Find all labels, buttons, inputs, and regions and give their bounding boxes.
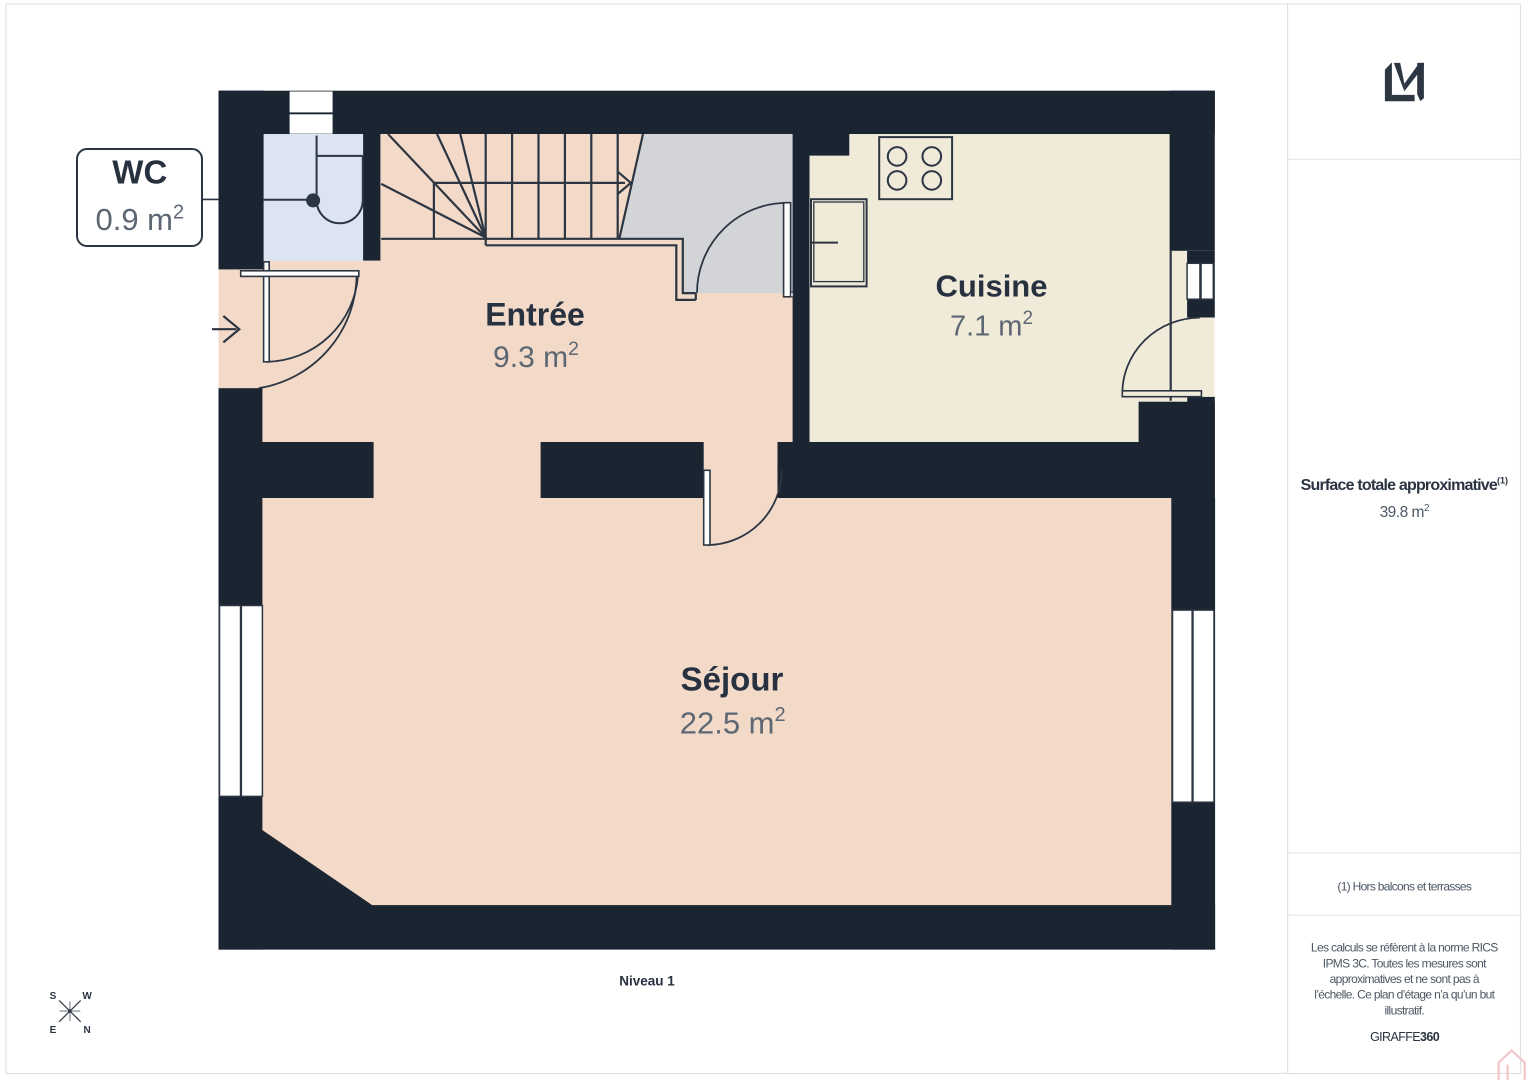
svg-text:Cuisine: Cuisine xyxy=(936,269,1048,304)
svg-text:Niveau 1: Niveau 1 xyxy=(619,973,675,988)
svg-text:E: E xyxy=(50,1025,57,1036)
svg-text:9.3 m2: 9.3 m2 xyxy=(493,338,579,374)
svg-text:W: W xyxy=(82,991,92,1002)
svg-text:WC: WC xyxy=(112,153,167,190)
svg-text:approximatives et ne sont pas: approximatives et ne sont pas à xyxy=(1330,972,1480,986)
svg-text:7.1 m2: 7.1 m2 xyxy=(950,308,1033,343)
svg-text:39.8 m2: 39.8 m2 xyxy=(1380,503,1430,521)
svg-text:(1) Hors balcons et terrasses: (1) Hors balcons et terrasses xyxy=(1337,880,1471,894)
svg-text:22.5 m2: 22.5 m2 xyxy=(680,704,786,741)
svg-text:0.9 m2: 0.9 m2 xyxy=(95,202,184,238)
svg-text:IPMS 3C. Toutes les mesures so: IPMS 3C. Toutes les mesures sont xyxy=(1323,956,1487,970)
svg-text:GIRAFFE360: GIRAFFE360 xyxy=(1370,1030,1440,1044)
svg-text:N: N xyxy=(83,1025,90,1036)
svg-text:Surface totale approximative(1: Surface totale approximative(1) xyxy=(1301,475,1508,494)
svg-text:l’échelle. Ce plan d’étage n’a: l’échelle. Ce plan d’étage n’a qu’un but xyxy=(1314,988,1495,1002)
svg-text:Les calculs se réfèrent à la n: Les calculs se réfèrent à la norme RICS xyxy=(1311,941,1498,955)
svg-text:Entrée: Entrée xyxy=(485,297,585,333)
svg-text:Séjour: Séjour xyxy=(681,661,784,698)
svg-text:illustratif.: illustratif. xyxy=(1385,1003,1425,1017)
svg-text:S: S xyxy=(50,991,57,1002)
